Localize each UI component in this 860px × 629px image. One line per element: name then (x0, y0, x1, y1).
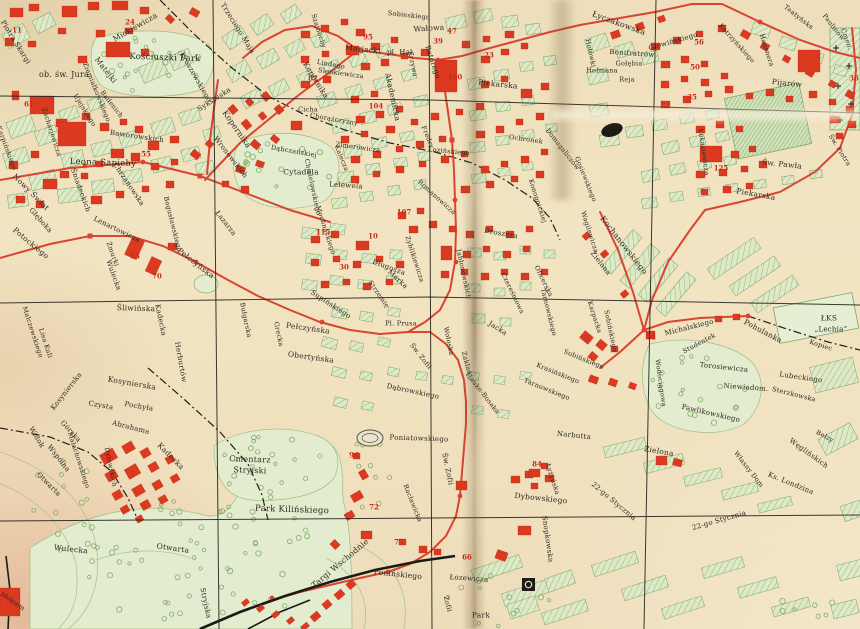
street-label: Snopkowska (540, 515, 554, 563)
street-label: Kadecka (153, 304, 168, 337)
street-label: Św. Pawła (762, 158, 803, 171)
sports-field (773, 293, 858, 344)
map-number-label: 107 (397, 207, 412, 216)
map-number-label: 104 (369, 101, 384, 110)
pond (194, 275, 383, 446)
street-label: Krasińskiego (535, 361, 580, 386)
map-number-label: 82 (308, 73, 318, 82)
tram-stop-dot (453, 198, 458, 203)
map-number-label: 72 (369, 502, 379, 511)
street-label: Sterzkowska (771, 385, 816, 404)
street-label: Grecka (272, 321, 285, 347)
map-number-label: 95 (363, 32, 373, 41)
street-label: Dylewskich (103, 447, 119, 488)
street-label: Wagilewicza (579, 210, 600, 254)
street-label: Sobińskiego (563, 348, 606, 371)
street-label: Droszera (483, 227, 518, 241)
tram-stop-square (450, 138, 455, 143)
historical-city-map: Piotra SkargiMickiewiczaKościuszki Parko… (0, 0, 860, 629)
map-number-label: 100 (448, 72, 463, 81)
street-label: Teatyńska (782, 3, 815, 31)
street-label: Racławicka (402, 483, 424, 523)
street-label: Pełczyńska (176, 246, 217, 280)
street-label: Kętrzyńskiego (717, 22, 757, 65)
street-label: Lenartowicza (92, 215, 141, 244)
street-label: Narbutta (556, 430, 591, 442)
street-label: 22-go Stycznia (590, 480, 638, 522)
street-label: „Lechia” (815, 325, 848, 333)
map-number-label: 77 (394, 537, 404, 546)
map-number-label: 115 (316, 227, 331, 236)
map-number-label: 35 (687, 92, 697, 101)
street-label: Bonifratrów (609, 48, 655, 59)
map-number-label: 125 (714, 163, 729, 172)
map-number-label: 94 (349, 450, 359, 459)
map-number-label: 23 (484, 50, 494, 59)
street-label: Piekarska (478, 78, 519, 91)
map-number-label: 39 (433, 36, 443, 45)
street-label: Kosynierska (49, 371, 83, 412)
street-label: Stryjski (233, 465, 267, 475)
street-label: Tarnowskiego (523, 376, 571, 402)
street-label: Wspólna (46, 443, 72, 473)
street-label: Własny Dom (732, 449, 765, 488)
street-label: Wołoska (442, 326, 456, 356)
map-number-label: 61 (24, 99, 34, 108)
map-number-label: 36 (849, 73, 859, 82)
street-label: Zyblikiewicza (403, 235, 426, 283)
street-label: Ks. Londzina (767, 471, 815, 497)
street-label: Łozewicza (449, 573, 488, 584)
street-label: Trzeciego Maja (219, 1, 257, 55)
street-label: Gołębia (616, 59, 643, 67)
tram-stop-dot (320, 320, 325, 325)
map-number-label: 47 (447, 26, 457, 35)
street-label: Supińskiego (309, 288, 352, 320)
street-label: Hausnera (758, 33, 776, 68)
tram-stop-square (198, 174, 203, 179)
map-number-label: 30 (339, 262, 349, 271)
map-number-label: 10 (368, 231, 378, 240)
street-label: Tarnowskiego (539, 287, 559, 336)
street-label: Reja (619, 75, 635, 83)
map-number-label: 55 (141, 149, 151, 158)
street-label: Św. Zofii (440, 452, 456, 486)
street-label: Otwarta (35, 471, 62, 498)
street-label: Piekarska (736, 186, 777, 202)
street-label: 22-go Stycznia (691, 509, 747, 532)
map-number-label: 50 (690, 62, 700, 71)
street-label: Zofii (442, 595, 454, 613)
street-label: Sobieskiego (387, 9, 430, 21)
map-number-label: 56 (694, 37, 704, 46)
street-label: Łazarza (213, 209, 238, 237)
map-number-label: 74 (646, 332, 656, 341)
tram-stop-dot (141, 160, 146, 165)
street-label: Poniatowskiego (389, 433, 448, 443)
map-number-label: 63 (130, 251, 140, 260)
tram-stop-dot (458, 494, 463, 499)
street-label: Dąbrowskiego (386, 382, 440, 401)
street-label: Pl. Prusa (385, 319, 417, 327)
street-label: Wałowa (413, 23, 445, 34)
street-label: Obertyńska (287, 349, 334, 364)
street-label: Gosiewskiego (573, 155, 598, 203)
street-label: Konopnickiej (527, 178, 549, 224)
street-label: ob. św. Jura (39, 70, 89, 79)
street-label: Śliwińska (116, 303, 155, 313)
map-number-label: 84 (532, 459, 542, 468)
waterworks-icon (522, 578, 535, 591)
street-label: Kosynierska (107, 374, 157, 391)
street-label: Hofmana (586, 66, 618, 74)
street-label: Abrahama (110, 419, 150, 436)
street-label: Pochyła (124, 400, 154, 413)
street-label: Widok (27, 425, 47, 450)
map-number-label: 70 (152, 271, 162, 280)
street-label: Karpacka (586, 300, 604, 334)
street-label: Park (472, 611, 491, 620)
tram-stop-square (88, 234, 93, 239)
street-label: Cmentarz (229, 454, 271, 464)
street-label: ŁKS (821, 314, 838, 323)
street-label: Herburtów (173, 341, 188, 383)
map-number-label: 24 (125, 17, 135, 26)
street-label: Ochronek (508, 133, 543, 146)
map-number-label: 66 (462, 552, 472, 561)
tram-stop-dot (758, 20, 763, 25)
street-label: Głęboka (27, 206, 54, 234)
street-label: Ponińskiego (373, 567, 423, 581)
street-label: Czysta (88, 399, 114, 411)
street-label: Kadecka (156, 441, 187, 472)
street-label: Akademicka (383, 71, 402, 122)
map-number-label: 11 (12, 25, 22, 34)
map-svg: Piotra SkargiMickiewiczaKościuszki Parko… (0, 0, 860, 629)
street-label: Bułgarska (238, 302, 253, 339)
